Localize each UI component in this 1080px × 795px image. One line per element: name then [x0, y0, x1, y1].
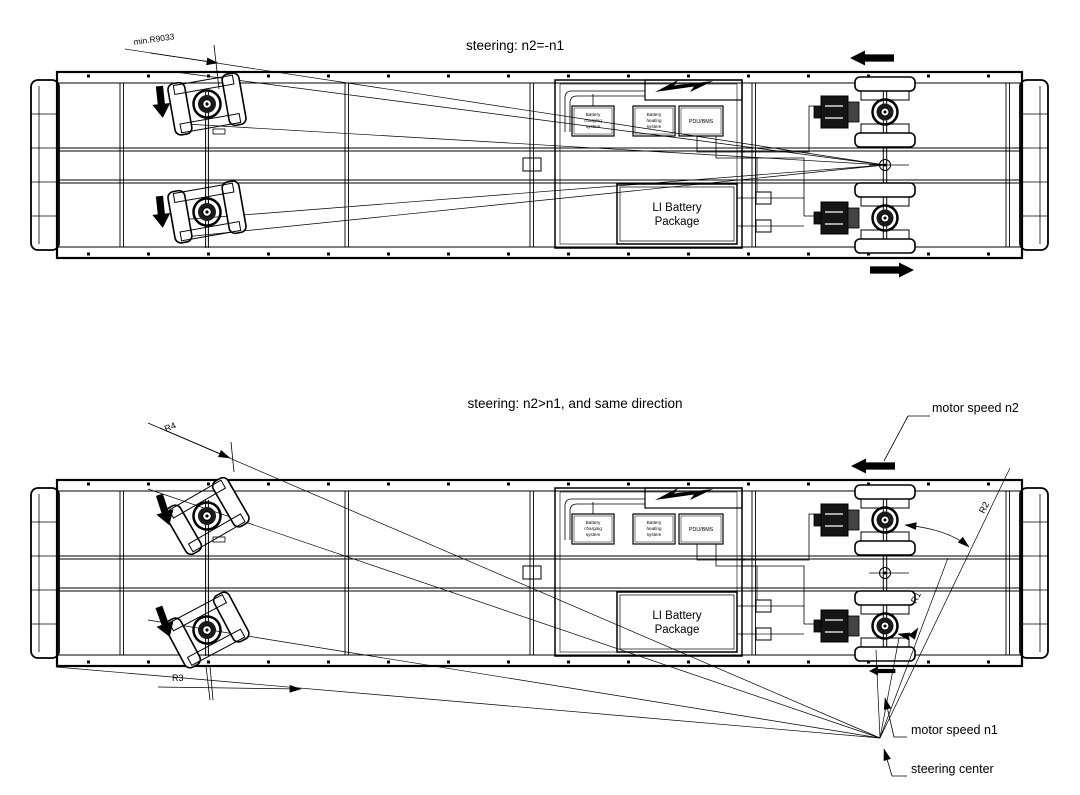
- motor-speed-n1-label: motor speed n1: [911, 723, 998, 737]
- motor-speed-n2-arrow-icon: [851, 459, 895, 474]
- rear-speed-arrow-left-icon: [850, 51, 894, 66]
- diagram-1: steering: n2=-n1 min.R9033: [31, 31, 1048, 277]
- front-bogie-bottom-2: [163, 590, 251, 670]
- front-bogie-top-2: [163, 475, 251, 556]
- rear-speed-arrow-right-icon: [870, 263, 914, 278]
- motor-speed-n1-arrow-icon: [869, 667, 895, 676]
- diagram-2: steering: n2>n1, and same direction R4 R…: [31, 396, 1048, 776]
- min-radius-label: min.R9033: [133, 31, 175, 47]
- r2-label: R2: [977, 500, 991, 515]
- diagram2-steering-lines: [56, 423, 1010, 738]
- front-bogie-top-1: [167, 72, 247, 136]
- r3-label: R3: [172, 673, 184, 683]
- r4-label: R4: [163, 420, 178, 434]
- technical-drawing-page: Battery charging system Battery heating …: [0, 0, 1080, 795]
- diagram2-title: steering: n2>n1, and same direction: [467, 396, 682, 411]
- steering-center-label: steering center: [911, 762, 994, 776]
- motor-speed-n2-label: motor speed n2: [932, 401, 1019, 415]
- diagram1-title: steering: n2=-n1: [466, 38, 564, 53]
- steering-diagram-canvas: Battery charging system Battery heating …: [0, 0, 1080, 795]
- front-bogie-bottom-1: [167, 180, 247, 244]
